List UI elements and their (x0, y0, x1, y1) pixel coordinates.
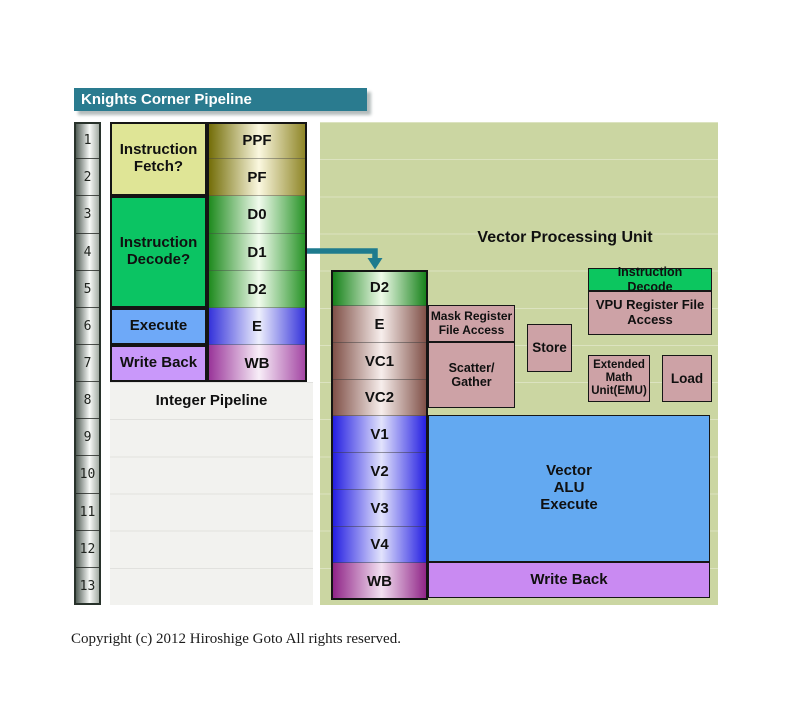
vector-stage-wb: WB (331, 563, 428, 600)
page-title: Knights Corner Pipeline (74, 88, 367, 111)
row-number: 4 (74, 234, 101, 271)
stage-cell-d1: D1 (207, 234, 307, 271)
pipeline-branch-arrow-icon (300, 238, 395, 274)
stage-cell-ppf: PPF (207, 122, 307, 159)
load-box: Load (662, 355, 712, 402)
extended-math-unit-box: ExtendedMathUnit(EMU) (588, 355, 650, 402)
row-number: 7 (74, 345, 101, 382)
row-number: 3 (74, 196, 101, 234)
vpu-register-file-access-box: VPU Register FileAccess (588, 291, 712, 335)
row-number: 13 (74, 568, 101, 605)
row-number: 11 (74, 494, 101, 531)
stage-cell-d2: D2 (207, 271, 307, 308)
instruction-fetch-box: InstructionFetch? (110, 122, 207, 196)
row-number: 6 (74, 308, 101, 345)
vector-stage-v1: V1 (331, 416, 428, 453)
integer-pipeline-background (110, 382, 313, 605)
stage-cell-pf: PF (207, 159, 307, 196)
scatter-gather-box: Scatter/Gather (428, 342, 515, 408)
vector-stage-vc1: VC1 (331, 343, 428, 380)
vector-stage-v4: V4 (331, 527, 428, 563)
row-number: 8 (74, 382, 101, 419)
vector-write-back-box: Write Back (428, 562, 710, 598)
vector-stage-d2: D2 (331, 270, 428, 306)
row-number: 12 (74, 531, 101, 568)
stage-cell-e: E (207, 308, 307, 345)
row-number: 1 (74, 122, 101, 159)
vector-stage-v2: V2 (331, 453, 428, 490)
vector-processing-unit-caption: Vector Processing Unit (430, 228, 700, 248)
page: { "title": "Knights Corner Pipeline", "c… (0, 0, 800, 702)
stage-cell-wb: WB (207, 345, 307, 382)
vpu-instruction-decode-box: InstructionDecode (588, 268, 712, 291)
stage-cell-d0: D0 (207, 196, 307, 234)
vector-alu-execute-box: VectorALUExecute (428, 415, 710, 562)
row-number: 9 (74, 419, 101, 456)
store-box: Store (527, 324, 572, 372)
copyright-text: Copyright (c) 2012 Hiroshige Goto All ri… (71, 631, 401, 648)
vector-stage-vc2: VC2 (331, 380, 428, 416)
write-back-box: Write Back (110, 345, 207, 382)
vector-stage-e: E (331, 306, 428, 343)
row-number: 5 (74, 271, 101, 308)
integer-pipeline-caption: Integer Pipeline (110, 386, 313, 414)
execute-box: Execute (110, 308, 207, 345)
row-number: 10 (74, 456, 101, 494)
mask-register-file-access-box: Mask RegisterFile Access (428, 305, 515, 342)
vector-stage-v3: V3 (331, 490, 428, 527)
row-number: 2 (74, 159, 101, 196)
instruction-decode-box: InstructionDecode? (110, 196, 207, 308)
